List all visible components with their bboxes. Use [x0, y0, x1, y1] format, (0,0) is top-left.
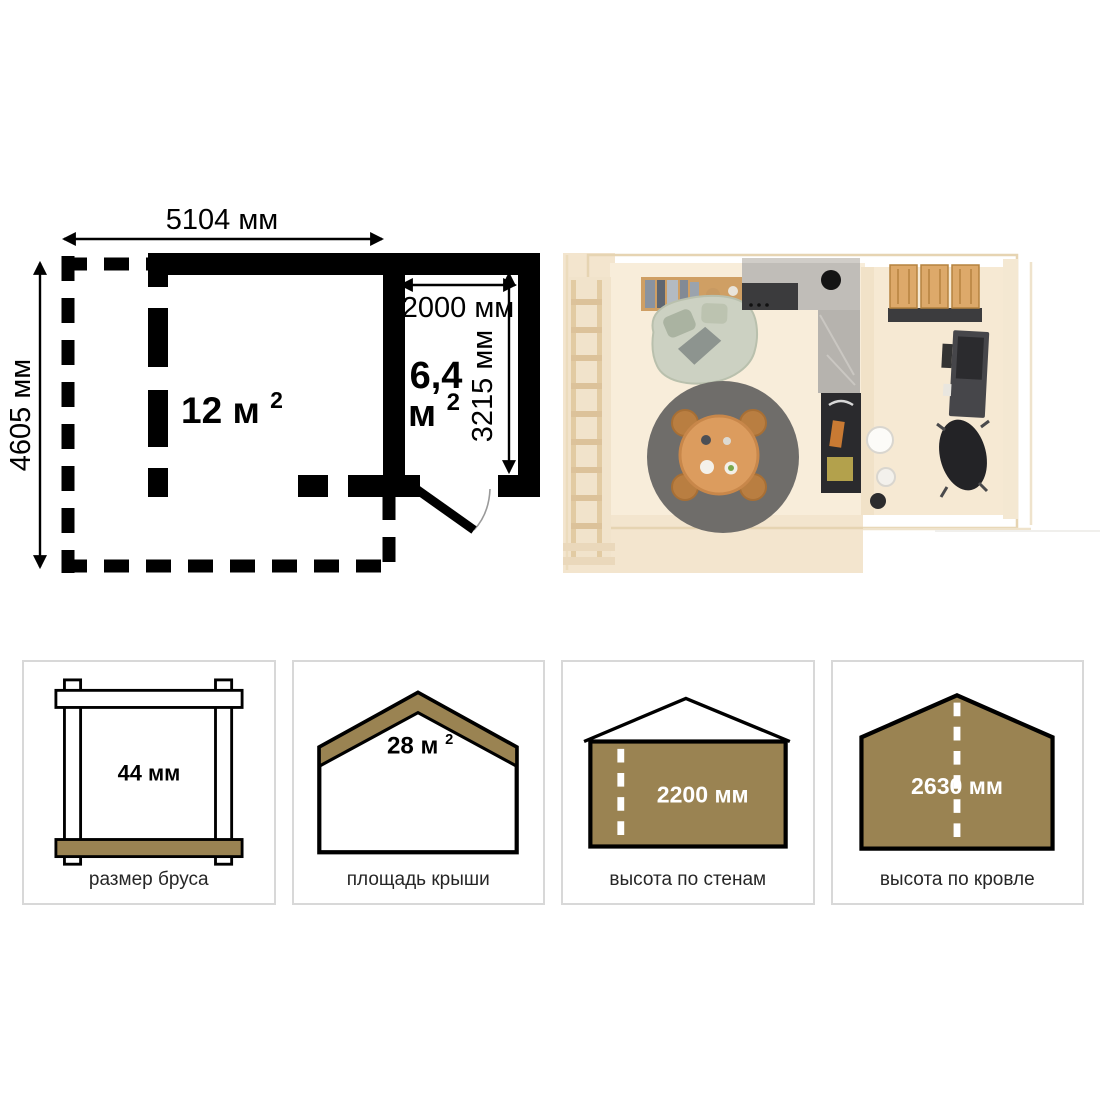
- small-room-area: 6,4 м 2: [408, 355, 462, 435]
- card-wall-height-label: высота по стенам: [609, 870, 766, 895]
- roof-height-value: 2630 мм: [911, 773, 1003, 799]
- shelf-cup: [728, 286, 738, 296]
- card-roof-area: 28 м 2 площадь крыши: [292, 660, 546, 905]
- card-wall-height: 2200 мм высота по стенам: [561, 660, 815, 905]
- beam-size-value: 44 мм: [117, 761, 180, 786]
- dimension-width: 5104 мм: [64, 204, 382, 239]
- main-room-area: 12 м 2: [181, 387, 283, 431]
- small-room-width-label: 2000 мм: [402, 292, 514, 324]
- stool: [870, 493, 886, 509]
- loft-ladder: [569, 277, 611, 563]
- desk-monitor: [956, 336, 984, 379]
- wall-height-value: 2200 мм: [656, 781, 748, 807]
- wall-divider: [383, 253, 405, 497]
- card-roof-height-label: высота по кровле: [880, 870, 1035, 895]
- wall-left-segment-2: [148, 390, 168, 447]
- card-roof-height: 2630 мм высота по кровле: [831, 660, 1085, 905]
- beam-horizontal-top: [56, 690, 242, 707]
- wall-top: [148, 253, 540, 275]
- wall-bottom-right: [498, 475, 540, 497]
- floor-plan: 5104 мм 4605 мм 12 м 2 6,4 м 2 2000 мм 3…: [0, 190, 560, 620]
- wall-height-icon: 2200 мм: [583, 678, 793, 868]
- main-room-area-sup: 2: [270, 387, 283, 413]
- crate: [827, 457, 853, 481]
- plate: [700, 460, 714, 474]
- wall-left-segment-3: [148, 468, 168, 497]
- typewriter: [941, 344, 952, 368]
- main-room-area-value: 12 м: [181, 390, 260, 431]
- small-room-area-unit: м 2: [408, 389, 460, 435]
- spec-cards-row: 44 мм размер бруса 28 м 2 площадь крыши …: [22, 660, 1084, 905]
- door: [412, 486, 490, 530]
- dimension-height-label: 4605 мм: [5, 359, 37, 471]
- small-room-dim-width: 2000 мм: [401, 285, 515, 324]
- right-wall-band: [1003, 259, 1018, 519]
- dimension-width-label: 5104 мм: [166, 204, 278, 236]
- door-swing-arc: [474, 489, 490, 530]
- card-beam-size-label: размер бруса: [89, 870, 209, 895]
- wall-right: [518, 253, 540, 497]
- door-leaf: [412, 486, 474, 530]
- small-room-height-label: 3215 мм: [467, 330, 499, 442]
- house-outline: [320, 693, 517, 853]
- interior-render-3d: [555, 225, 1106, 615]
- dimension-height: 4605 мм: [5, 263, 40, 567]
- bowl: [701, 435, 711, 445]
- roof-height-icon: 2630 мм: [852, 678, 1062, 868]
- wall-bottom-junction: [348, 475, 420, 497]
- roof-area-value: 28 м 2: [387, 732, 453, 759]
- tall-black-cabinet: [821, 393, 861, 493]
- beam-horizontal-bottom: [56, 840, 242, 857]
- page: { "plan": { "dim_width": "5104 мм", "dim…: [0, 0, 1106, 1106]
- wall-bottom-piece: [298, 475, 328, 497]
- sink: [821, 270, 841, 290]
- roof-area-icon: 28 м 2: [313, 678, 523, 868]
- wall-left-corner: [148, 253, 168, 287]
- card-roof-area-label: площадь крыши: [347, 870, 490, 895]
- wall-left-segment-1: [148, 308, 168, 367]
- wood-cabinets: [888, 265, 982, 322]
- roof-outline: [584, 698, 790, 741]
- dining-table: [680, 416, 758, 494]
- room-divider-wall: [861, 267, 874, 515]
- beam-frame-icon: 44 мм: [44, 678, 254, 868]
- sofa-pillow: [701, 303, 728, 324]
- card-beam-size: 44 мм размер бруса: [22, 660, 276, 905]
